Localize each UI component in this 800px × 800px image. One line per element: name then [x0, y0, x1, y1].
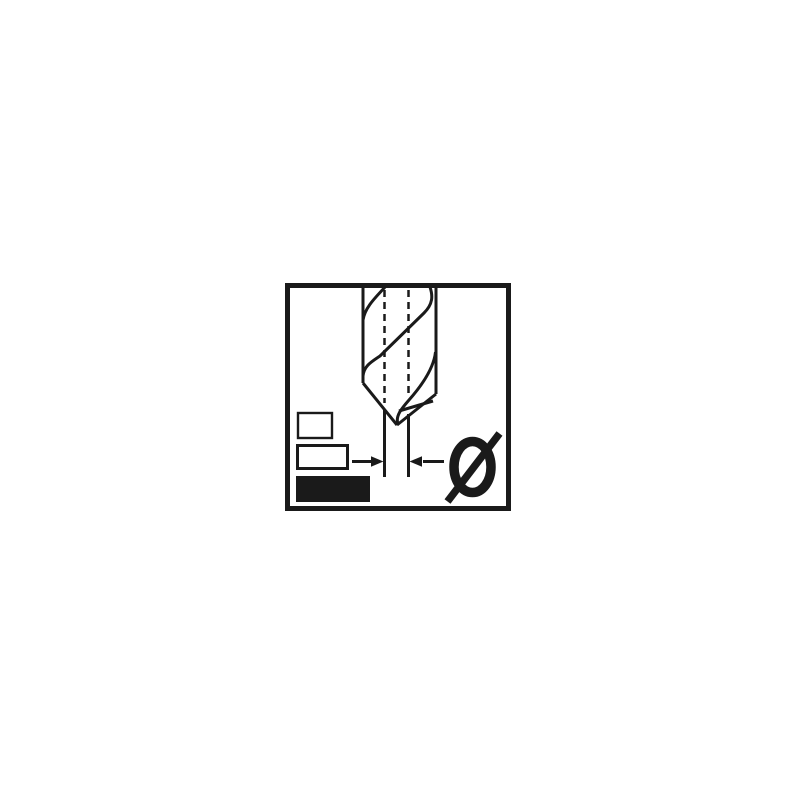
- swatch-large-filled: [296, 476, 370, 502]
- pictogram-frame: [288, 286, 509, 509]
- drill-bit-icon: [363, 286, 436, 425]
- arrow-left-head-icon: [371, 456, 384, 466]
- drill-left-taper: [363, 383, 397, 425]
- dimension-arrows: [352, 456, 444, 466]
- swatch-small-outline: [298, 413, 332, 438]
- arrow-right-head-icon: [410, 456, 423, 466]
- swatch-medium-outline: [298, 446, 348, 469]
- drill-flute-point-curve: [397, 352, 435, 424]
- size-swatches: [296, 413, 370, 502]
- page-background: [0, 0, 800, 800]
- drill-flute-hook-top-left: [363, 286, 386, 320]
- pictogram-canvas: [0, 0, 800, 800]
- diameter-symbol: [448, 434, 500, 502]
